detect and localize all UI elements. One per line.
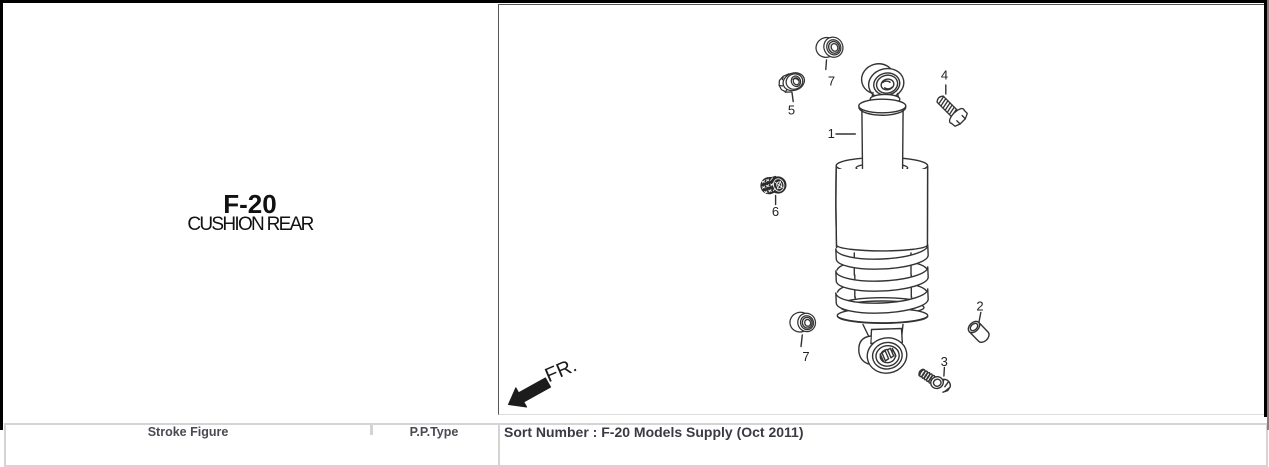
svg-text:5: 5	[788, 103, 795, 118]
svg-text:FR.: FR.	[542, 354, 580, 387]
svg-text:4: 4	[941, 68, 948, 83]
svg-text:6: 6	[772, 204, 779, 219]
svg-text:7: 7	[802, 349, 809, 364]
svg-text:2: 2	[976, 299, 983, 314]
svg-text:7: 7	[828, 74, 835, 89]
svg-text:1: 1	[828, 126, 835, 141]
svg-text:3: 3	[941, 354, 948, 369]
